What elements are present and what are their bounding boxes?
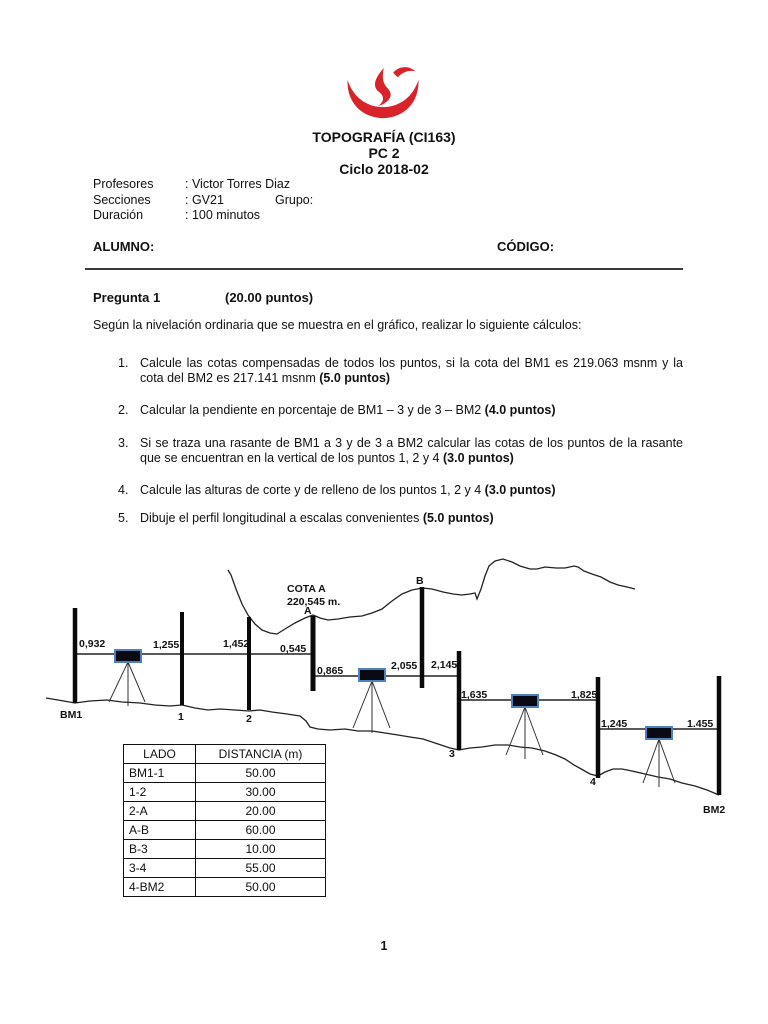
question-item-3: 3. Si se traza una rasante de BM1 a 3 y … [118, 436, 683, 465]
cota-a-value: 220,545 m. [287, 596, 340, 608]
info-block: Profesores: Victor Torres Diaz Secciones… [93, 177, 513, 224]
lado-cell: B-3 [124, 840, 196, 859]
question-title: Pregunta 1 [93, 290, 160, 305]
label-bm2: BM2 [703, 804, 725, 816]
label-point-a: A [304, 605, 312, 617]
item-points: (4.0 puntos) [485, 403, 556, 417]
exam-document-page: TOPOGRAFÍA (CI163) PC 2 Ciclo 2018-02 Pr… [0, 0, 768, 1024]
question-item-1: 1. Calcule las cotas compensadas de todo… [118, 356, 683, 385]
distancia-cell: 20.00 [196, 802, 326, 821]
item-points: (5.0 puntos) [423, 511, 494, 525]
table-row: 4-BM250.00 [124, 878, 326, 897]
label-point-4: 4 [590, 776, 596, 788]
question-item-4: 4. Calcule las alturas de corte y de rel… [118, 483, 683, 498]
lado-cell: 3-4 [124, 859, 196, 878]
distancia-cell: 55.00 [196, 859, 326, 878]
level-instrument-2-icon [353, 669, 390, 733]
alumno-label: ALUMNO: [93, 239, 154, 254]
item-text: Calcule las alturas de corte y de rellen… [140, 483, 683, 498]
reading-4-foresight: 1,825 [571, 689, 597, 701]
item-number: 3. [118, 436, 140, 465]
codigo-label: CÓDIGO: [497, 239, 554, 254]
table-row: BM1-150.00 [124, 764, 326, 783]
lado-cell: 4-BM2 [124, 878, 196, 897]
label-point-2: 2 [246, 713, 252, 725]
item-text: Dibuje el perfil longitudinal a escalas … [140, 511, 683, 526]
info-value: : 100 minutos [185, 208, 260, 222]
info-label: Secciones [93, 193, 185, 209]
horizontal-divider [85, 268, 683, 270]
label-point-1: 1 [178, 711, 184, 723]
reading-4-backsight: 1,245 [601, 718, 627, 730]
question-points: (20.00 puntos) [225, 290, 313, 305]
grupo-label: Grupo: [275, 193, 313, 209]
col-header-distancia: DISTANCIA (m) [196, 745, 326, 764]
table-header-row: LADO DISTANCIA (m) [124, 745, 326, 764]
reading-point1: 1,255 [153, 639, 179, 651]
page-number: 1 [0, 939, 768, 953]
label-point-3: 3 [449, 748, 455, 760]
table-row: B-310.00 [124, 840, 326, 859]
leveling-diagram: 0,932 1,255 1,452 0,545 0,865 2,055 2,14… [0, 552, 768, 835]
info-value: : GV21 [185, 193, 224, 207]
reading-a-foresight: 0,545 [280, 643, 306, 655]
lado-cell: 1-2 [124, 783, 196, 802]
item-number: 2. [118, 403, 140, 418]
reading-bm1: 0,932 [79, 638, 105, 650]
level-instrument-4-icon [643, 727, 675, 787]
item-points: (5.0 puntos) [319, 371, 390, 385]
lado-cell: 2-A [124, 802, 196, 821]
distancia-cell: 30.00 [196, 783, 326, 802]
item-text: Calcular la pendiente en porcentaje de B… [140, 403, 683, 418]
level-instrument-1-icon [109, 650, 145, 706]
reading-point2: 1,452 [223, 638, 249, 650]
reading-b: 2,055 [391, 660, 417, 672]
cycle: Ciclo 2018-02 [0, 161, 768, 177]
reading-3-backsight: 1,635 [461, 689, 487, 701]
course-title: TOPOGRAFÍA (CI163) [0, 129, 768, 145]
distancia-cell: 60.00 [196, 821, 326, 840]
distancia-cell: 50.00 [196, 764, 326, 783]
question-item-2: 2. Calcular la pendiente en porcentaje d… [118, 403, 683, 418]
info-label: Profesores [93, 177, 185, 193]
title-block: TOPOGRAFÍA (CI163) PC 2 Ciclo 2018-02 [0, 129, 768, 177]
upc-logo-icon [341, 62, 425, 126]
table-row: 2-A20.00 [124, 802, 326, 821]
info-row-profesores: Profesores: Victor Torres Diaz [93, 177, 513, 193]
item-number: 5. [118, 511, 140, 526]
col-header-lado: LADO [124, 745, 196, 764]
lado-cell: A-B [124, 821, 196, 840]
item-number: 1. [118, 356, 140, 385]
item-points: (3.0 puntos) [485, 483, 556, 497]
reading-a-backsight: 0,865 [317, 665, 343, 677]
cota-a-title: COTA A [287, 583, 326, 595]
distancia-cell: 10.00 [196, 840, 326, 859]
info-row-duracion: Duración: 100 minutos [93, 208, 513, 224]
item-number: 4. [118, 483, 140, 498]
lado-cell: BM1-1 [124, 764, 196, 783]
table-row: A-B60.00 [124, 821, 326, 840]
reading-3-foresight: 2,145 [431, 659, 457, 671]
label-point-b: B [416, 575, 424, 587]
item-points: (3.0 puntos) [443, 451, 514, 465]
info-value: : Victor Torres Diaz [185, 177, 290, 191]
table-row: 3-455.00 [124, 859, 326, 878]
item-text: Si se traza una rasante de BM1 a 3 y de … [140, 436, 683, 465]
info-row-secciones: Secciones: GV21 Grupo: [93, 193, 513, 209]
distancia-cell: 50.00 [196, 878, 326, 897]
table-row: 1-230.00 [124, 783, 326, 802]
info-label: Duración [93, 208, 185, 224]
question-intro: Según la nivelación ordinaria que se mue… [93, 318, 685, 332]
reading-bm2: 1.455 [687, 718, 713, 730]
distance-table: LADO DISTANCIA (m) BM1-150.00 1-230.00 2… [123, 744, 326, 897]
label-bm1: BM1 [60, 709, 82, 721]
item-text: Calcule las cotas compensadas de todos l… [140, 356, 683, 385]
question-item-5: 5. Dibuje el perfil longitudinal a escal… [118, 511, 683, 526]
exam-name: PC 2 [0, 145, 768, 161]
